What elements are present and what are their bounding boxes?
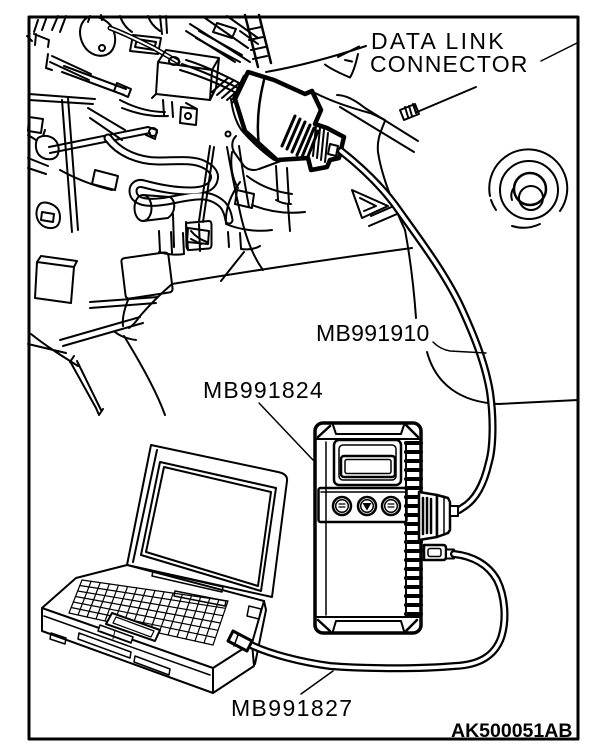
svg-text:AK500051AB: AK500051AB [451,720,572,742]
svg-text:MB991910: MB991910 [316,320,430,346]
svg-text:MB991824: MB991824 [203,377,324,403]
svg-text:CONNECTOR: CONNECTOR [370,51,529,77]
svg-text:MB991827: MB991827 [231,695,353,721]
